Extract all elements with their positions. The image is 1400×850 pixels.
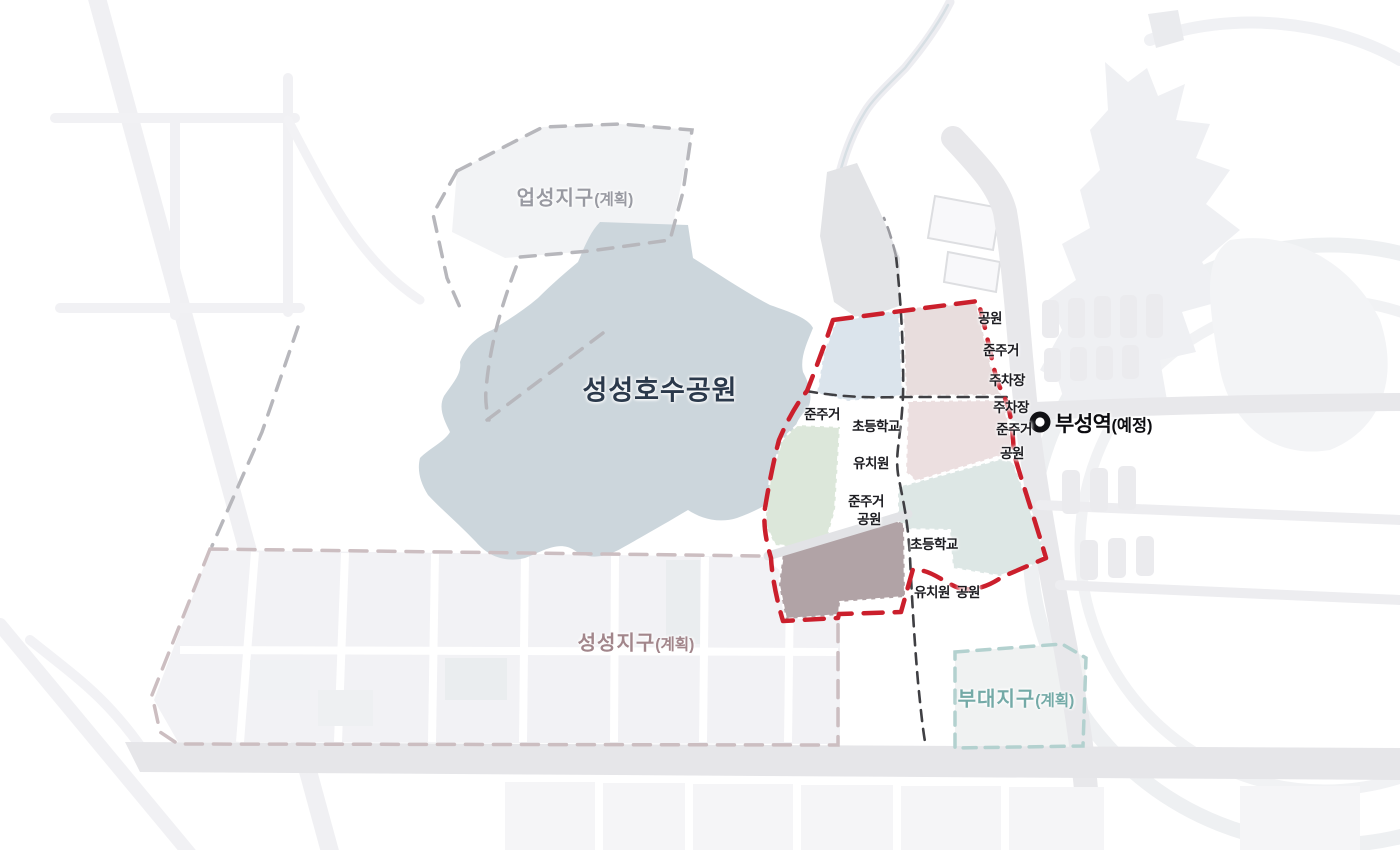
zone-label-parking-1: 주차장 bbox=[989, 369, 1025, 389]
zone-label-park-e: 공원 bbox=[1000, 442, 1024, 462]
terrain-northeast bbox=[1040, 10, 1388, 452]
district-label-upseong: 업성지구(계획) bbox=[517, 182, 634, 211]
seongseong-suffix: (계획) bbox=[655, 637, 694, 654]
station-label: 부성역(예정) bbox=[1055, 408, 1152, 438]
zone-label-elementary-school-1: 초등학교 bbox=[852, 415, 900, 435]
seongseong-name: 성성지구 bbox=[578, 633, 656, 655]
map-canvas bbox=[0, 0, 1400, 850]
planning-map: { "map": { "title_context": "urban distr… bbox=[0, 0, 1400, 850]
station-marker bbox=[1030, 412, 1051, 433]
zone-label-kindergarten-2: 유치원 bbox=[914, 581, 950, 601]
lake-park-name: 성성호수공원 bbox=[582, 376, 737, 406]
district-label-budae: 부대지구(계획) bbox=[958, 683, 1075, 712]
district-label-lake-park: 성성호수공원 bbox=[582, 369, 737, 408]
station-name: 부성역 bbox=[1055, 413, 1111, 436]
upseong-suffix: (계획) bbox=[594, 192, 633, 209]
seongseong-district-area bbox=[154, 550, 840, 744]
district-label-seongseong: 성성지구(계획) bbox=[578, 627, 695, 656]
budae-name: 부대지구 bbox=[958, 689, 1036, 711]
zone-label-semi-res-e: 준주거 bbox=[996, 418, 1032, 438]
road-junction-north bbox=[820, 163, 1000, 320]
zone-label-elementary-school-2: 초등학교 bbox=[910, 533, 958, 553]
zone-label-park-sw: 공원 bbox=[857, 508, 881, 528]
zone-label-park-ne: 공원 bbox=[978, 307, 1002, 327]
zone-label-semi-res-w: 준주거 bbox=[804, 403, 840, 423]
zone-label-semi-res-ne: 준주거 bbox=[983, 339, 1019, 359]
upseong-name: 업성지구 bbox=[517, 188, 595, 210]
zone-label-kindergarten-1: 유치원 bbox=[853, 452, 889, 472]
zone-label-parking-2: 주차장 bbox=[993, 396, 1029, 416]
zone-label-park-s: 공원 bbox=[956, 581, 980, 601]
stream bbox=[836, 2, 950, 188]
station-suffix: (예정) bbox=[1111, 417, 1152, 435]
budae-suffix: (계획) bbox=[1035, 693, 1074, 710]
zone-label-semi-res-sw: 준주거 bbox=[848, 490, 884, 510]
